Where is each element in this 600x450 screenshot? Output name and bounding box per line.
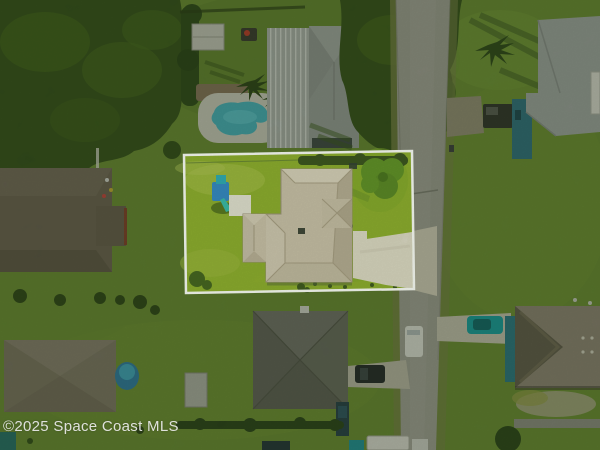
aerial-scene bbox=[0, 0, 600, 450]
texture-grain bbox=[0, 0, 600, 450]
watermark: ©2025 Space Coast MLS bbox=[3, 418, 179, 435]
aerial-photo: ©2025 Space Coast MLS bbox=[0, 0, 600, 450]
